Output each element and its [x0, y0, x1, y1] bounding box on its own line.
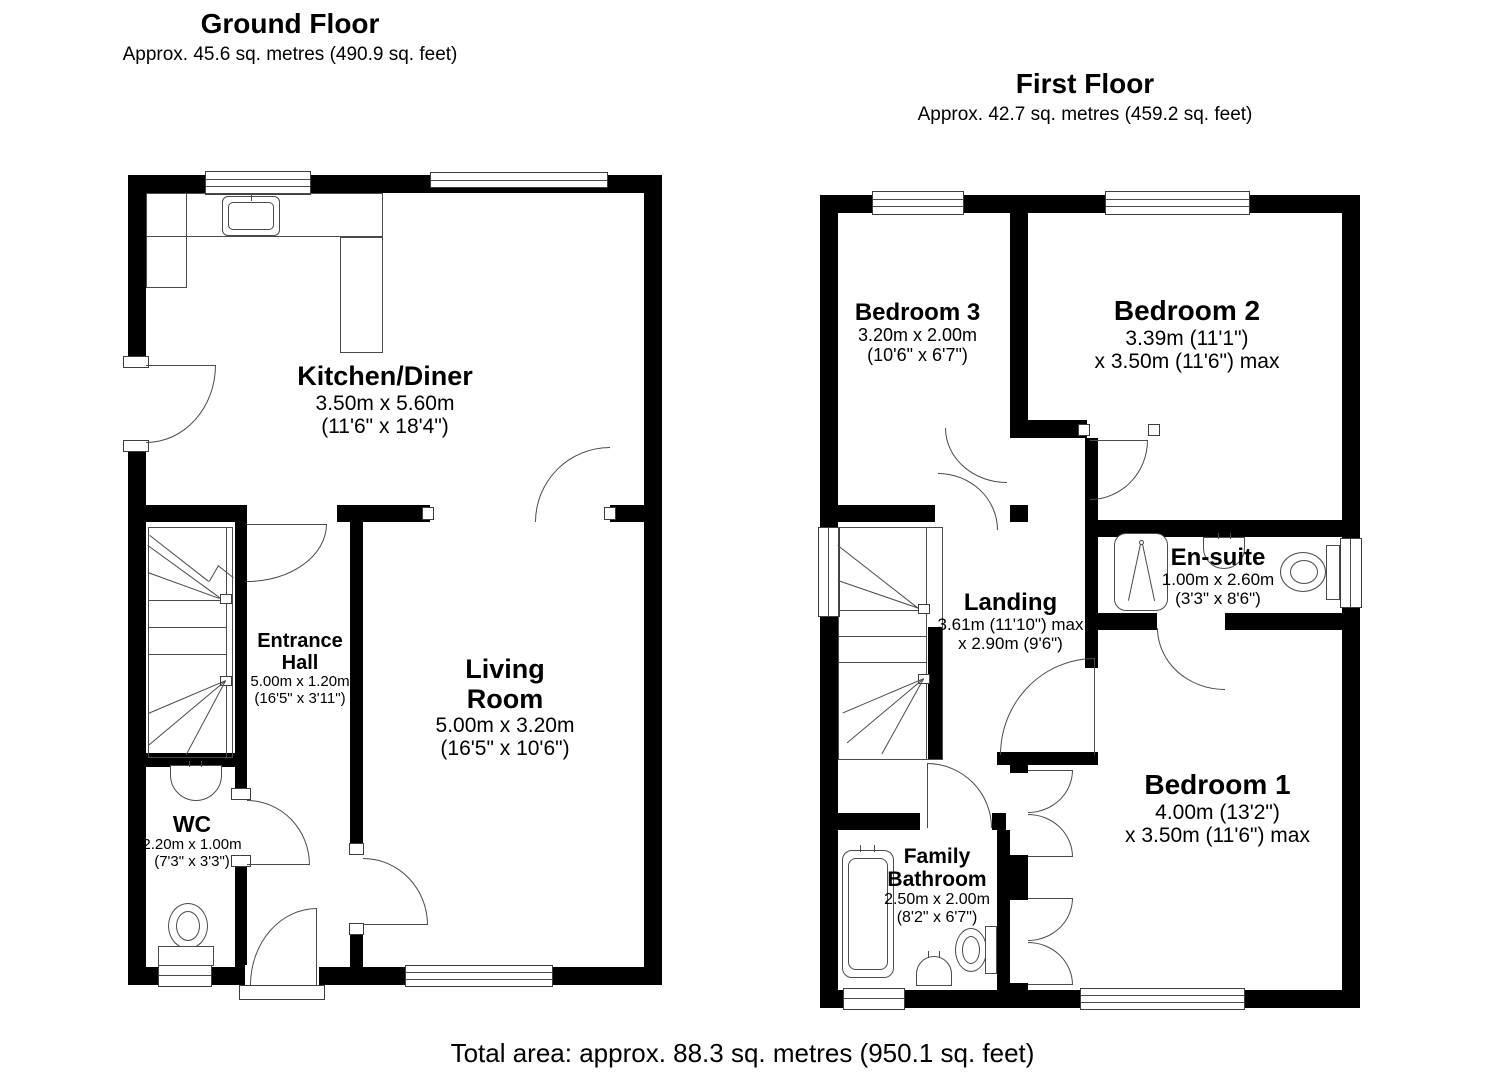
room-dim-metric: 1.00m x 2.60m: [1152, 571, 1284, 590]
room-dim-metric: 5.00m x 1.20m: [239, 674, 361, 691]
room-dim-imperial: (11'6" x 18'4"): [255, 415, 515, 438]
wall: [992, 813, 1006, 830]
room-name: En-suite: [1152, 545, 1284, 571]
window: [843, 988, 905, 1010]
door-jamb: [1078, 424, 1090, 436]
room-dim-line2: x 2.90m (9'6"): [923, 635, 1098, 654]
wardrobe-door-arc: [1028, 898, 1073, 941]
toilet: [1280, 552, 1326, 592]
wall: [146, 505, 247, 522]
window: [430, 172, 608, 188]
room-label-living: Living Room 5.00m x 3.20m (16'5" x 10'6"…: [410, 655, 600, 761]
room-dim-metric: 3.20m x 2.00m: [835, 326, 1000, 346]
total-area-text: Total area: approx. 88.3 sq. metres (950…: [0, 1038, 1485, 1069]
room-name: Hall: [239, 652, 361, 674]
window-pane-line: [1106, 199, 1249, 200]
room-dim-imperial: (7'3" x 3'3"): [137, 854, 247, 871]
window-pane-line: [873, 199, 963, 200]
stair-tread: [838, 636, 926, 637]
room-dim-line1: 3.39m (11'1"): [1062, 327, 1312, 350]
toilet-bowl: [176, 911, 200, 941]
window-pane-line: [1081, 1002, 1244, 1003]
room-dim-metric: 2.50m x 2.00m: [857, 891, 1017, 909]
floorplan-canvas: Ground Floor Approx. 45.6 sq. metres (49…: [0, 0, 1485, 1080]
window: [1340, 538, 1362, 608]
room-dim-metric: 5.00m x 3.20m: [410, 714, 600, 737]
door-opening: [127, 368, 147, 440]
basin-tap: [939, 951, 940, 958]
side-door-arc: [146, 365, 216, 443]
wc-door-arc: [247, 800, 310, 865]
wall: [235, 867, 247, 967]
window: [818, 527, 840, 617]
door-jamb: [422, 507, 434, 520]
wall: [838, 505, 935, 522]
window-pane-line: [1350, 539, 1351, 607]
wall: [1225, 613, 1342, 630]
wall: [337, 505, 430, 522]
wall: [1010, 505, 1028, 522]
room-dim-line1: 4.00m (13'2"): [1095, 801, 1340, 824]
toilet: [168, 903, 208, 949]
room-name: Bedroom 1: [1095, 770, 1340, 801]
kitchen-counter: [146, 193, 187, 288]
ground-floor-subtitle: Approx. 45.6 sq. metres (490.9 sq. feet): [110, 44, 470, 66]
stair-tread: [838, 610, 926, 611]
room-label-bedroom3: Bedroom 3 3.20m x 2.00m (10'6" x 6'7"): [835, 300, 1000, 366]
toilet-cistern: [1326, 545, 1340, 600]
room-name: Bedroom 3: [835, 300, 1000, 326]
basin-tap: [928, 951, 929, 958]
basin-tap: [1218, 533, 1219, 539]
room-dim-line2: x 3.50m (11'6") max: [1062, 350, 1312, 373]
shower-line: [1128, 544, 1141, 601]
window: [158, 965, 212, 987]
window-pane-line: [828, 528, 829, 616]
window-pane-line: [159, 975, 211, 976]
basin-tap: [201, 761, 202, 767]
room-name: Bedroom 2: [1062, 296, 1312, 327]
basin-tap: [1230, 533, 1231, 539]
wall: [644, 175, 662, 985]
door-jamb: [231, 788, 251, 800]
room-label-landing: Landing 3.61m (11'10") max x 2.90m (9'6"…: [923, 590, 1098, 654]
window-pane-line: [1106, 206, 1249, 207]
room-dim-metric: 2.20m x 1.00m: [137, 837, 247, 854]
room-name: Room: [410, 685, 600, 715]
bedroom3-door-arc: [938, 473, 998, 530]
window-pane-line: [206, 186, 310, 187]
living-door-arc: [363, 858, 428, 925]
room-dim-imperial: (10'6" x 6'7"): [835, 346, 1000, 366]
bedroom1-door-arc: [1000, 658, 1095, 755]
window-pane-line: [206, 179, 310, 180]
door-jamb: [1148, 424, 1160, 436]
wall: [1010, 420, 1087, 438]
window: [1080, 988, 1245, 1010]
window-pane-line: [1081, 995, 1244, 996]
toilet-bowl: [1290, 560, 1318, 584]
basin-tap: [189, 761, 190, 767]
window: [1105, 191, 1250, 215]
room-label-hall: Entrance Hall 5.00m x 1.20m (16'5" x 3'1…: [239, 630, 361, 707]
room-dim-line2: x 3.50m (11'6") max: [1095, 824, 1340, 847]
kitchen-counter: [340, 237, 383, 353]
sink-tap: [251, 193, 252, 201]
room-name: Living: [410, 655, 600, 685]
room-dim-imperial: (16'5" x 10'6"): [410, 737, 600, 760]
toilet-cistern: [985, 926, 997, 974]
room-name: Kitchen/Diner: [255, 362, 515, 392]
door-jamb: [349, 843, 364, 855]
toilet-cistern: [158, 946, 214, 966]
room-name: Bathroom: [857, 868, 1017, 891]
sink-basin: [228, 202, 274, 230]
room-dim-imperial: (8'2" x 6'7"): [857, 909, 1017, 927]
ground-floor-title: Ground Floor: [140, 8, 440, 40]
first-floor-title: First Floor: [935, 68, 1235, 100]
room-label-bedroom2: Bedroom 2 3.39m (11'1") x 3.50m (11'6") …: [1062, 296, 1312, 373]
stair-tread: [148, 627, 226, 628]
door-jamb: [349, 923, 364, 935]
window: [405, 965, 553, 987]
room-label-bedroom1: Bedroom 1 4.00m (13'2") x 3.50m (11'6") …: [1095, 770, 1340, 847]
stair-stringer: [226, 527, 227, 758]
window-pane-line: [406, 972, 552, 973]
window-pane-line: [406, 979, 552, 980]
first-floor-subtitle: Approx. 42.7 sq. metres (459.2 sq. feet): [905, 104, 1265, 126]
room-label-bathroom: Family Bathroom 2.50m x 2.00m (8'2" x 6'…: [857, 845, 1017, 926]
window-pane-line: [431, 180, 607, 181]
wardrobe-door-arc: [1028, 770, 1073, 813]
window: [205, 171, 311, 195]
wall: [838, 813, 920, 830]
room-name: Family: [857, 845, 1017, 868]
sink: [222, 196, 280, 236]
wall: [1010, 983, 1028, 990]
shower-drain: [1139, 540, 1144, 545]
room-label-wc: WC 2.20m x 1.00m (7'3" x 3'3"): [137, 812, 247, 870]
hall-door-arc: [247, 524, 327, 582]
window-pane-line: [844, 998, 904, 999]
room-dim-imperial: (3'3" x 8'6"): [1152, 590, 1284, 609]
room-label-ensuite: En-suite 1.00m x 2.60m (3'3" x 8'6"): [1152, 545, 1284, 609]
room-name: Entrance: [239, 630, 361, 652]
toilet: [955, 928, 987, 972]
bedroom2-door-arc: [1090, 440, 1148, 500]
wall: [1010, 213, 1028, 425]
toilet-bowl: [962, 936, 980, 964]
window: [872, 191, 964, 215]
ensuite-door-arc: [1157, 628, 1225, 690]
door-jamb: [604, 507, 616, 520]
wardrobe-door-arc: [1028, 942, 1073, 985]
door-threshold: [239, 985, 325, 1000]
wall: [1098, 613, 1157, 630]
basin: [916, 956, 952, 986]
room-name: WC: [137, 812, 247, 837]
window-pane-line: [873, 206, 963, 207]
wall: [1010, 765, 1028, 773]
room-dim-line1: 3.61m (11'10") max: [923, 616, 1098, 635]
room-dim-imperial: (16'5" x 3'11"): [239, 691, 361, 708]
basin: [170, 765, 222, 801]
stair-tread: [148, 654, 226, 655]
bathroom-door-arc: [927, 763, 992, 828]
room-dim-metric: 3.50m x 5.60m: [255, 392, 515, 415]
staircase: [148, 527, 233, 758]
room-name: Landing: [923, 590, 1098, 616]
wardrobe-door-arc: [1028, 814, 1073, 857]
room-label-kitchen: Kitchen/Diner 3.50m x 5.60m (11'6" x 18'…: [255, 362, 515, 438]
stair-tread: [838, 662, 926, 663]
stair-tread: [148, 600, 226, 601]
stair-newel: [220, 594, 232, 604]
front-door-arc: [250, 908, 317, 985]
kitchen-door-arc: [535, 447, 610, 522]
